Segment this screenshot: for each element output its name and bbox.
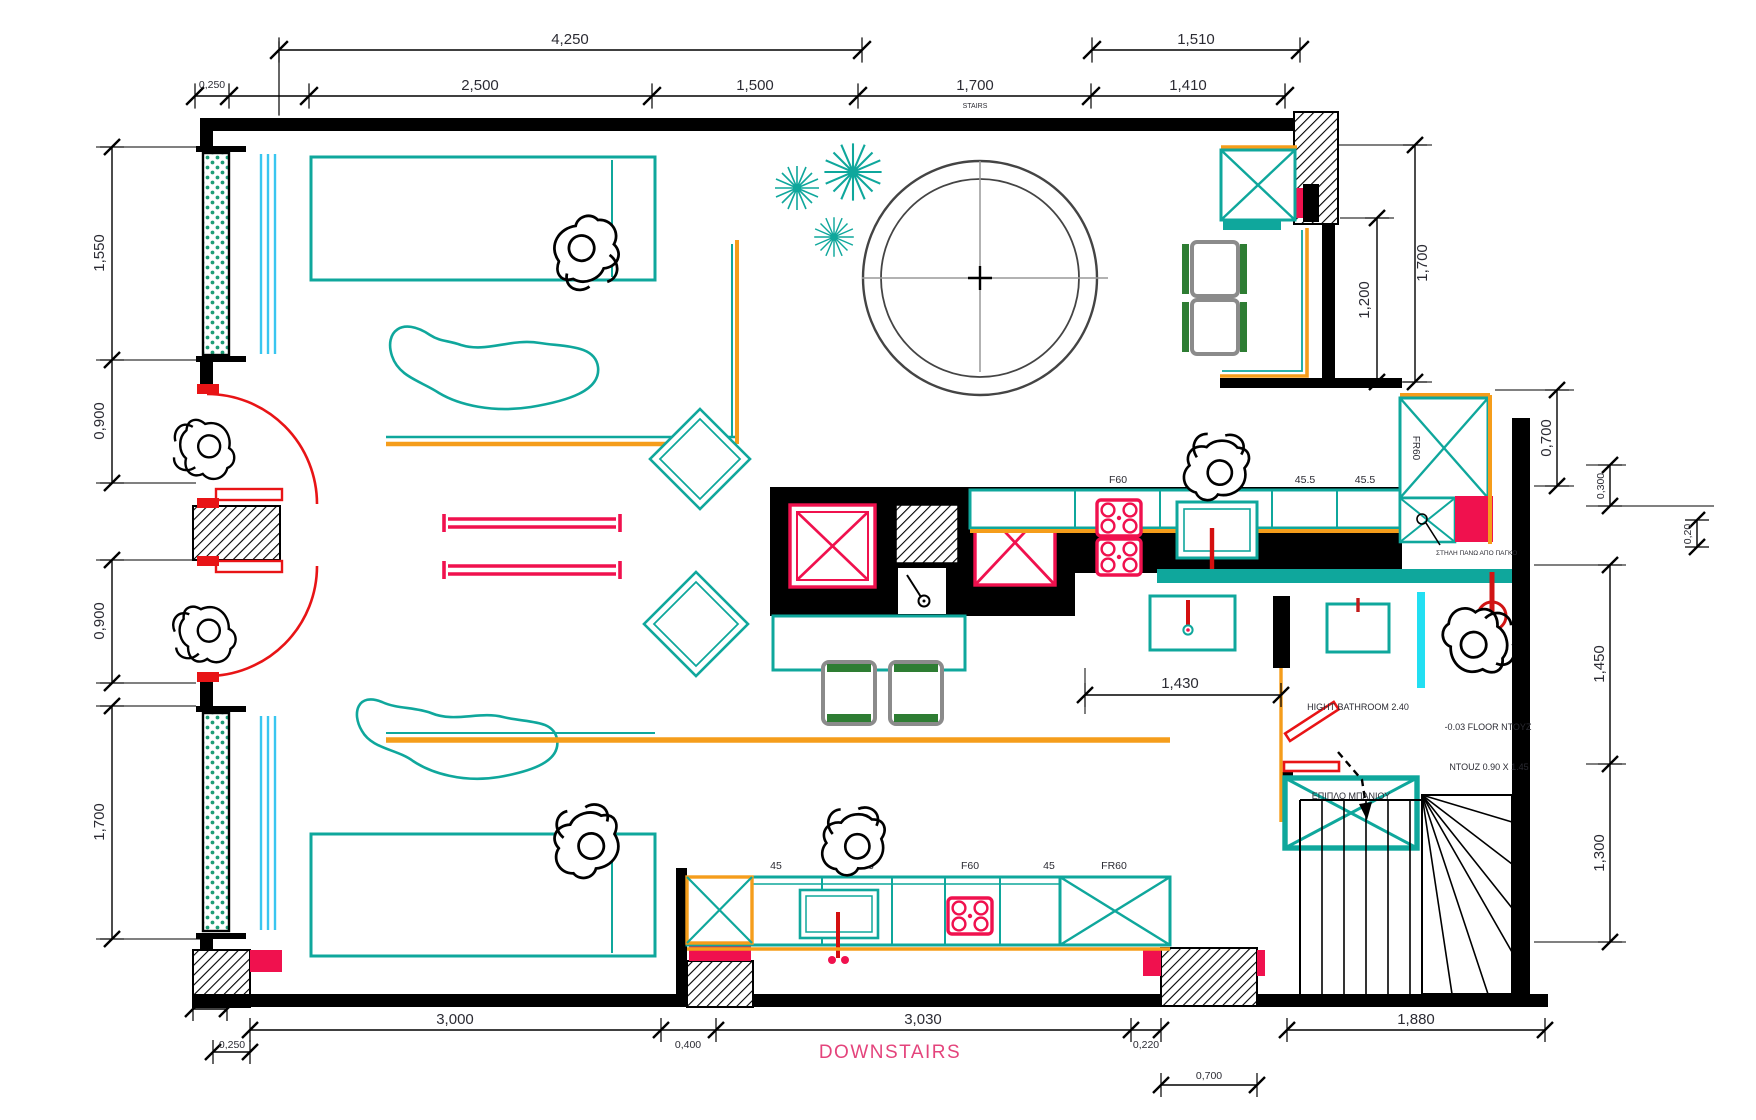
cabinet-label: 45 (770, 860, 782, 872)
plant-icon (814, 217, 854, 257)
stairs-note: STAIRS (963, 103, 988, 110)
dimension-pass: 1,430 (1077, 668, 1289, 714)
dim-label: 1,500 (736, 77, 774, 94)
person-figure (1441, 604, 1517, 676)
chair (1182, 300, 1247, 354)
dim-label: 1,510 (1177, 31, 1215, 48)
dim-label: 0,20 (1682, 524, 1694, 545)
downstairs-title: DOWNSTAIRS (819, 1042, 961, 1063)
window-bottom-bedroom (196, 706, 275, 939)
bath-note: HIGHT BATHROOM 2.40 (1307, 702, 1409, 712)
cabinet-label: F60 (961, 860, 979, 872)
dim-label: 2,500 (461, 77, 499, 94)
rug-top (390, 327, 598, 409)
tall-cabinet-fr60: FR60 ΣΤΗΛΗ ΠΑΝΩ ΑΠΟ ΠΑΓΚΟ (1400, 395, 1517, 557)
person-figure (171, 418, 237, 481)
dim-label: 0,220 (1133, 1039, 1159, 1051)
dim-label: 0,250 (199, 79, 225, 91)
dim-label: 1,880 (1397, 1011, 1435, 1028)
plant-icon (824, 143, 881, 200)
dim-label: 0,900 (91, 602, 108, 640)
dim-label: 1,410 (1169, 77, 1207, 94)
cabinet-label: 45 (1043, 860, 1055, 872)
cabinet-label: 45.5 (1355, 474, 1376, 486)
floor-plan-drawing: 4,250 1,510 0,250 2,500 1,500 1,700 STAI… (0, 0, 1756, 1120)
bath-note: -0.03 FLOOR NTOYZ (1445, 722, 1532, 732)
wardrobe-tracks (444, 514, 620, 579)
dim-label: 0,250 (219, 1039, 245, 1051)
dim-label: 0,400 (675, 1039, 701, 1051)
diamond-mirrors (644, 409, 750, 676)
cabinet-label: F60 (1109, 474, 1127, 486)
cabinet-label: 45.5 (1295, 474, 1316, 486)
dimensions-left: 1,550 0,900 0,900 1,700 (91, 139, 200, 947)
dimensions-bottom: 0,250 3,000 0,250 0,400 3,030 0,220 1,88… (185, 993, 1553, 1097)
kitchen-bottom (687, 877, 1170, 964)
dim-label: 0,300 (1595, 473, 1607, 499)
bath-note: NTOUZ 0.90 X 1.45 (1449, 762, 1528, 772)
dim-label: 4,250 (551, 31, 589, 48)
chair (890, 662, 942, 724)
dim-label: 1,550 (91, 234, 108, 272)
dim-label: 1,700 (91, 803, 108, 841)
dim-label: 0,700 (1196, 1070, 1222, 1082)
dim-label: 1,700 (1414, 244, 1431, 282)
dim-label: 1,430 (1161, 675, 1199, 692)
person-figure (821, 807, 886, 876)
cabinet-label: FR60 (1410, 436, 1421, 461)
dim-label: 3,000 (436, 1011, 474, 1028)
chair (1182, 242, 1247, 296)
cabinet-label: FR60 (1101, 860, 1127, 872)
person-figure (172, 603, 238, 666)
dim-label: 3,030 (904, 1011, 942, 1028)
dim-label: 0,700 (1538, 419, 1555, 457)
dim-label: 1,700 (956, 77, 994, 94)
dim-label: 0,900 (91, 402, 108, 440)
window-top-bedroom (196, 146, 275, 362)
floor-plan-page: 4,250 1,510 0,250 2,500 1,500 1,700 STAI… (0, 0, 1756, 1120)
dim-label: 1,200 (1356, 281, 1373, 319)
column-note: ΣΤΗΛΗ ΠΑΝΩ ΑΠΟ ΠΑΓΚΟ (1436, 550, 1517, 557)
dim-label: 1,450 (1591, 645, 1608, 683)
chair (823, 662, 875, 724)
plant-icon (775, 166, 819, 210)
dimensions-top: 4,250 1,510 0,250 2,500 1,500 1,700 STAI… (187, 31, 1308, 115)
round-table (862, 161, 1108, 395)
dim-label: 1,300 (1591, 834, 1608, 872)
